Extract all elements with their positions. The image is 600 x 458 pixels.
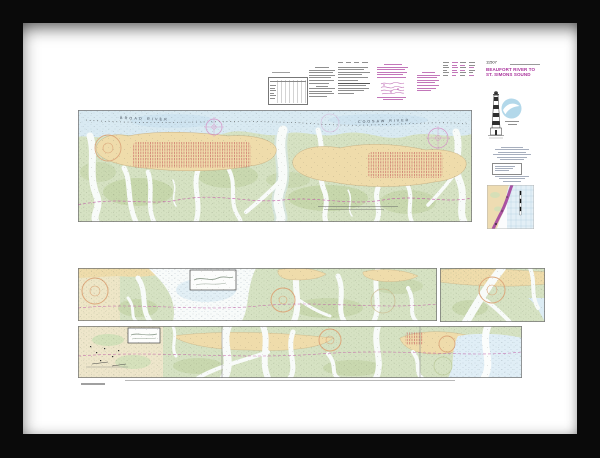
margin-note-columns — [443, 62, 473, 78]
margin-note-caption — [272, 72, 290, 73]
margin-note-3 — [377, 64, 408, 102]
logo-caption — [504, 121, 520, 126]
chart-title-block: 11507 BEAUFORT RIVER TO ST. SIMONS SOUND — [486, 62, 540, 87]
coverage-index-map — [487, 185, 534, 229]
margin-note-table — [268, 77, 308, 105]
title-rule — [510, 64, 540, 65]
chart-number: 11507 — [486, 60, 497, 65]
framed-nautical-chart: 11507 BEAUFORT RIVER TO ST. SIMONS SOUND — [0, 0, 600, 458]
margin-note-1 — [309, 67, 335, 99]
bottom-margin-note — [81, 383, 105, 385]
title-note-box — [492, 163, 522, 175]
chart-title-line-2: ST. SIMONS SOUND — [486, 72, 541, 77]
chart-panel-lower-left — [78, 268, 437, 321]
noaa-logo-icon — [501, 98, 522, 119]
margin-note-4 — [417, 72, 440, 93]
chart-panel-bottom — [78, 326, 522, 378]
index-map-scale-bar — [520, 191, 521, 215]
title-notes-lower — [488, 176, 536, 183]
chart-title: BEAUFORT RIVER TO ST. SIMONS SOUND — [486, 67, 541, 77]
margin-note-2 — [338, 62, 370, 96]
bottom-margin-note-long — [125, 380, 455, 381]
chart-panel-lower-right — [440, 268, 545, 322]
title-notes — [486, 147, 538, 162]
chart-panel-upper: BROAD RIVER COOSAW RIVER — [78, 110, 472, 222]
magenta-diagram — [379, 80, 406, 96]
